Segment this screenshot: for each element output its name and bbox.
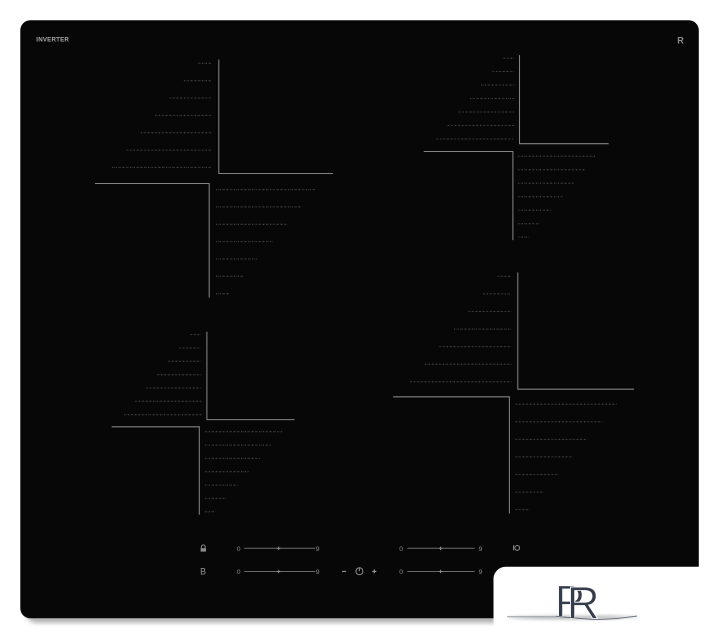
svg-text:9: 9 [316, 569, 320, 576]
svg-text:0: 0 [399, 546, 403, 553]
svg-text:INVERTER: INVERTER [36, 37, 69, 44]
svg-text:9: 9 [316, 546, 320, 553]
svg-text:0: 0 [237, 546, 241, 553]
svg-text:0: 0 [237, 569, 241, 576]
svg-text:9: 9 [479, 546, 483, 553]
svg-text:R: R [567, 577, 600, 628]
svg-text:R: R [677, 36, 684, 46]
svg-text:0: 0 [399, 569, 403, 576]
svg-text:9: 9 [479, 569, 483, 576]
svg-text:B: B [200, 567, 206, 577]
